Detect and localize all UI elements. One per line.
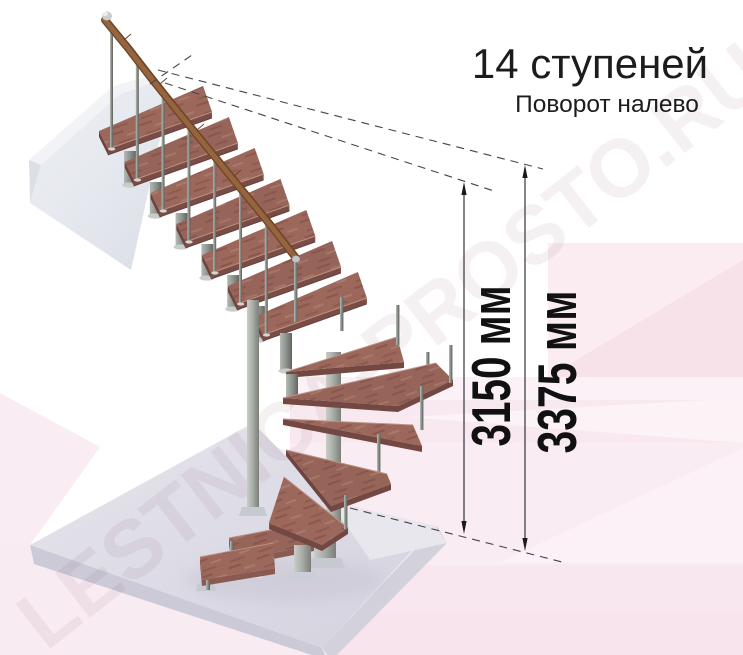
svg-text:3150 мм: 3150 мм — [460, 286, 522, 447]
svg-text:14 ступеней: 14 ступеней — [472, 40, 708, 87]
svg-text:3375 мм: 3375 мм — [526, 291, 588, 454]
svg-text:Поворот налево: Поворот налево — [515, 91, 699, 118]
